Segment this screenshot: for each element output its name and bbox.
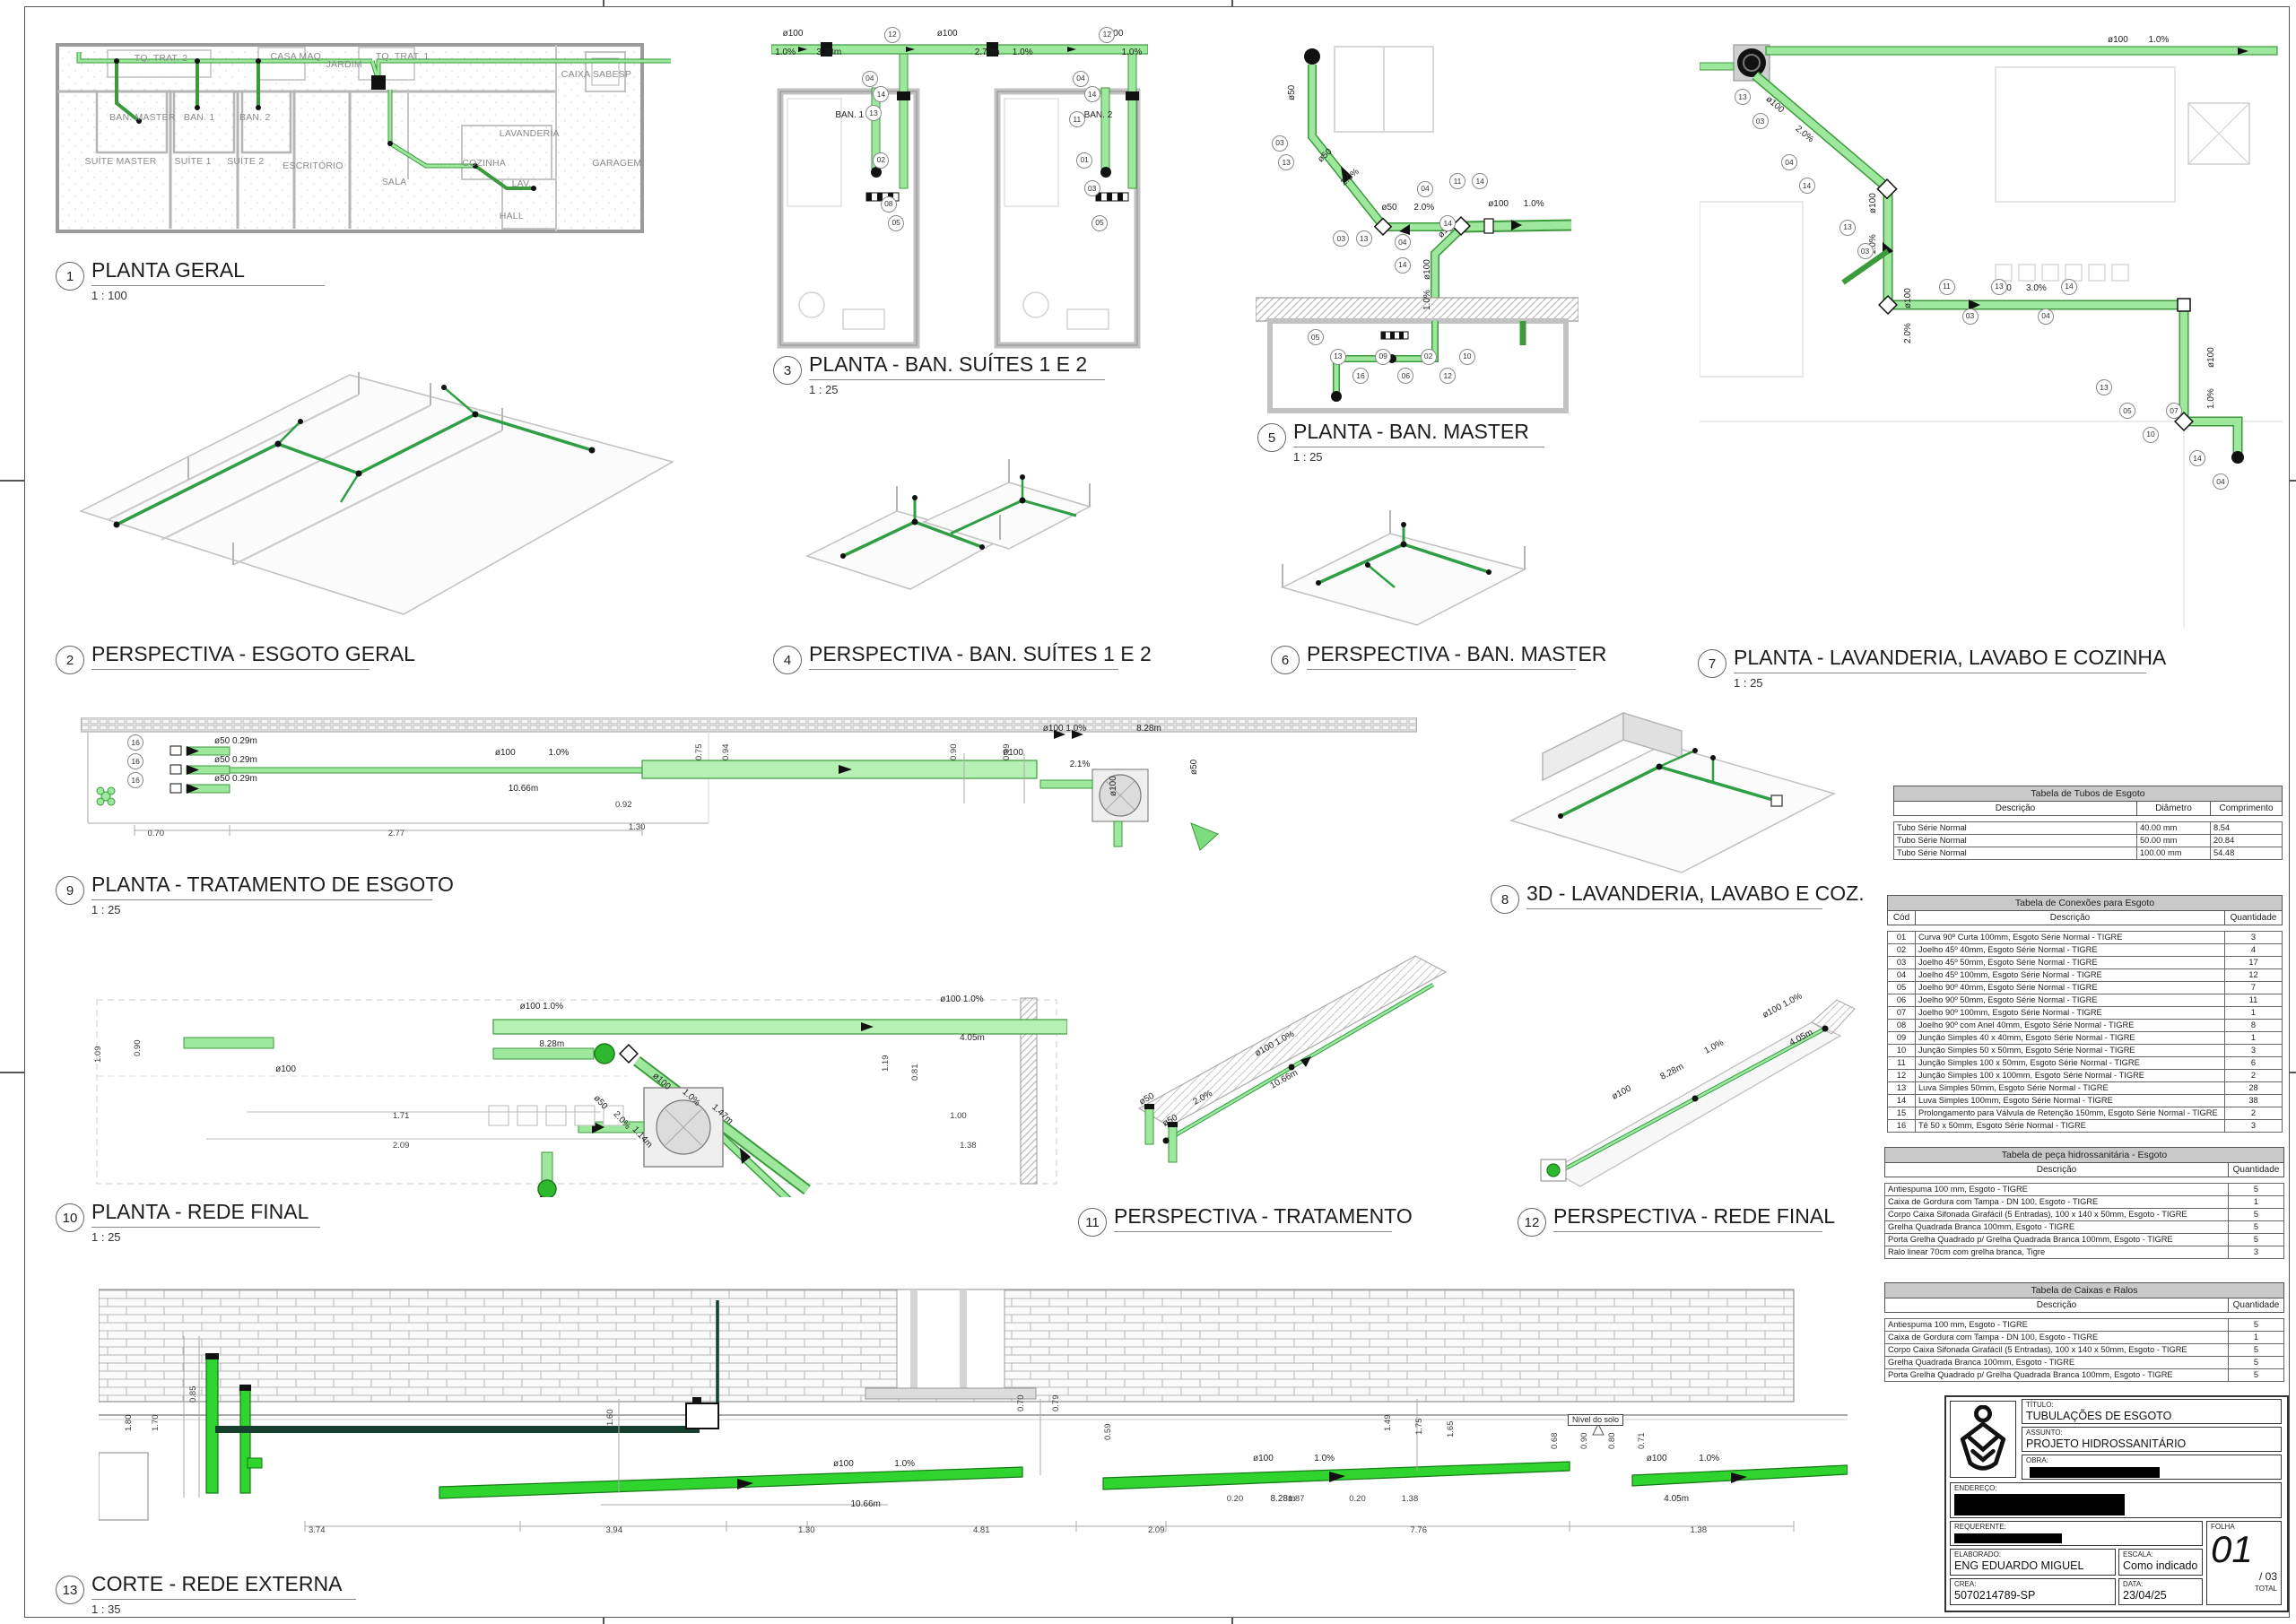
room-label: COZINHA [462,159,506,169]
perspectiva-geral-drawing [54,296,682,628]
pipe-label: ø100 [650,1072,672,1092]
col-diametro: Diâmetro [2136,802,2210,815]
total-label: TOTAL [2211,1585,2277,1593]
view-3d-lavanderia [1489,695,1848,879]
table-tubos: Tabela de Tubos de Esgoto Descrição Diâm… [1893,786,2283,860]
connection-tag: 03 [1962,308,1979,325]
pipe-label: 1.14m [631,1125,654,1150]
connection-tag: 04 [1417,181,1433,197]
pipe-label: ø50 [591,1094,608,1111]
room-label: BAN. 1 [184,113,214,123]
table-row: 06Joelho 90º 50mm, Esgoto Série Normal -… [1887,994,2283,1007]
connection-tag: 12 [1439,368,1456,384]
room-label: TQ. TRAT. 2 [135,54,188,64]
logo-box [1950,1401,2016,1478]
pipe-label: 1.38 [960,1142,977,1151]
pipe-label: 1.38 [1691,1526,1708,1535]
connection-tag: 13 [1330,349,1346,365]
pipe-label: Nível do solo [1568,1414,1623,1426]
col-comprimento: Comprimento [2210,802,2282,815]
field-value: ENG EDUARDO MIGUEL [1954,1559,2111,1572]
field-label: TÍTULO: [2026,1401,2277,1409]
room-label: LAVANDERIA [500,129,560,139]
view-corte-rede-externa: ø1001.0%10.66mø1001.0%8.28mø1001.0%4.05m… [99,1282,1848,1569]
view-planta-ban-suites: ø1001.0%3.38mø1002.78m1.0%ø1001.0%BAN. 1… [771,36,1148,350]
pipe-label: 4.05m [1664,1495,1689,1504]
table-row: Tubo Série Normal100.00 mm54.48 [1893,847,2283,860]
connection-tag: 04 [862,71,878,87]
pipe-label: 1.70 [152,1415,161,1432]
logo-icon [1954,1405,2012,1473]
pipe-label: 1.60 [606,1410,615,1427]
table-row: Porta Grelha Quadrado p/ Grelha Quadrada… [1884,1233,2284,1246]
field-label: ASSUNTO: [2026,1429,2277,1437]
view-scale: 1 : 25 [91,903,432,916]
pipe-label: ø100 1.0% [1254,1030,1296,1059]
pipe-label: 0.59 [1104,1424,1113,1441]
connection-tag: 03 [1752,113,1769,129]
table-row: Ralo linear 70cm com grelha branca, Tigr… [1884,1246,2284,1259]
edge-tick [603,1618,604,1624]
table-row: 03Joelho 45º 50mm, Esgoto Série Normal -… [1887,956,2283,969]
pipe-label: 1.49 [1384,1415,1393,1432]
view-title-6: 6 PERSPECTIVA - BAN. MASTER [1271,642,1576,674]
pipe-label: 0.79 [1052,1395,1061,1412]
table-row: Corpo Caixa Sifonada Girafácil (5 Entrad… [1884,1208,2284,1221]
edge-tick [0,1072,24,1073]
view-scale: 1 : 35 [91,1602,356,1616]
connection-tag: 16 [1352,368,1369,384]
field-value: PROJETO HIDROSSANITÁRIO [2026,1437,2277,1450]
connection-tag: 05 [888,215,904,231]
pipe-label: ø100 [1647,1455,1667,1463]
edge-tick [2290,1072,2296,1073]
pipe-label: 4.05m [960,1034,985,1043]
room-label: LAV. [512,179,532,189]
table-conexoes: Tabela de Conexões para Esgoto Cód Descr… [1887,895,2283,1133]
room-label: CASA MAQ. [271,52,325,62]
connection-tag: 06 [1397,368,1413,384]
view-title-text: PERSPECTIVA - TRATAMENTO [1114,1204,1392,1232]
view-number: 1 [56,262,84,291]
redacted-text [1954,1494,2125,1515]
connection-tag: 13 [865,105,882,121]
view-title-text: PERSPECTIVA - REDE FINAL [1553,1204,1822,1232]
table-row: Grelha Quadrada Branca 100mm, Esgoto - T… [1884,1356,2284,1369]
field-assunto: ASSUNTO: PROJETO HIDROSSANITÁRIO [2022,1427,2282,1452]
connection-tag: 11 [1939,279,1955,295]
view-number: 11 [1078,1208,1107,1237]
view-title-12: 12 PERSPECTIVA - REDE FINAL [1518,1204,1822,1237]
view-planta-geral: TQ. TRAT. 2CASA MAQ.JARDIMTQ. TRAT. 1CAI… [54,36,673,238]
view-perspectiva-esgoto-geral [54,296,682,628]
table-pecas: Tabela de peça hidrossanitária - Esgoto … [1884,1147,2284,1259]
connection-tag: 05 [1091,215,1108,231]
field-value: 5070214789-SP [1954,1589,2111,1602]
pipe-label: 1.0% [1699,1455,1719,1463]
connection-tag: 04 [1781,154,1797,170]
table-row: Caixa de Gordura com Tampa - DN 100, Esg… [1884,1331,2284,1344]
col-quantidade: Quantidade [2228,1298,2283,1312]
col-descricao: Descrição [1915,911,2224,925]
view-title-text: CORTE - REDE EXTERNA [91,1572,356,1600]
pipe-label: 4.81 [973,1526,990,1535]
table-title: Tabela de peça hidrossanitária - Esgoto [1884,1147,2284,1163]
view-scale: 1 : 25 [91,1230,320,1244]
table-row: 15Prolongamento para Válvula de Retenção… [1887,1107,2283,1120]
pipe-label: 1.30 [798,1526,815,1535]
view-number: 2 [56,646,84,674]
view-title-5: 5 PLANTA - BAN. MASTER 1 : 25 [1257,420,1544,464]
table-title: Tabela de Caixas e Ralos [1884,1282,2284,1298]
field-value: TUBULAÇÕES DE ESGOTO [2026,1410,2277,1422]
view-number: 13 [56,1576,84,1604]
perspectiva-suites-drawing [789,421,1094,637]
field-requerente: REQUERENTE: [1950,1521,2203,1546]
pipe-label: 1.0% [1703,1038,1726,1056]
room-label: ESCRITÓRIO [283,161,343,171]
field-label: ELABORADO: [1954,1550,2111,1559]
connection-tag: 11 [1449,173,1465,189]
view-title-text: PERSPECTIVA - ESGOTO GERAL [91,642,370,670]
pipe-label: 2.0% [1192,1090,1214,1107]
table-row: 13Luva Simples 50mm, Esgoto Série Normal… [1887,1081,2283,1095]
view-number: 10 [56,1203,84,1232]
connection-tag: 04 [2213,473,2229,490]
pipe-label: 0.90 [134,1039,143,1056]
connection-tag: 13 [1735,89,1751,105]
pipe-label: ø50 [1138,1092,1156,1107]
pipe-label: 2.09 [1148,1526,1165,1535]
edge-tick [1231,1618,1233,1624]
pipe-label: 0.90 [1580,1432,1589,1449]
connection-tag: 04 [2038,308,2054,325]
table-row: 07Joelho 90º 100mm, Esgoto Série Normal … [1887,1006,2283,1020]
field-titulo: TÍTULO: TUBULAÇÕES DE ESGOTO [2022,1399,2282,1424]
view-scale: 1 : 25 [1293,450,1544,464]
room-label: JARDIM [326,60,362,70]
pipe-label: 1.0% [894,1460,915,1469]
table-row: Caixa de Gordura com Tampa - DN 100, Esg… [1884,1195,2284,1209]
view-title-text: PLANTA - BAN. SUÍTES 1 E 2 [809,352,1105,380]
view-perspectiva-tratamento: ø50ø502.0%ø100 1.0%10.66m [1076,933,1462,1202]
table-row: Grelha Quadrada Branca 100mm, Esgoto - T… [1884,1220,2284,1234]
table-row: 11Junção Simples 100 x 50mm, Esgoto Séri… [1887,1056,2283,1070]
pipe-label: 8.28m [1659,1062,1685,1081]
pipe-label: 1.19 [882,1055,891,1073]
table-title: Tabela de Conexões para Esgoto [1887,895,2283,911]
connection-tag: 12 [1099,27,1115,43]
redacted-text [2030,1467,2160,1478]
pipe-label: 1.0% [680,1088,701,1108]
connection-tag: 13 [1356,230,1372,247]
col-quantidade: Quantidade [2224,911,2282,925]
view-title-text: PLANTA GERAL [91,258,325,286]
view-title-text: PERSPECTIVA - BAN. MASTER [1307,642,1576,670]
pipe-label: 4.05m [1788,1029,1814,1048]
pipe-label: 10.66m [851,1500,881,1509]
view-title-text: PLANTA - LAVANDERIA, LAVABO E COZINHA [1734,646,2146,673]
connection-tag: 16 [127,734,143,751]
connection-tag: 14 [1084,86,1100,102]
view-planta-rede-final: ø100 1.0%8.28mø100 1.0%4.05mø100ø1001.0%… [90,973,1067,1197]
table-header: Descrição Diâmetro Comprimento [1893,802,2283,816]
connection-tag: 03 [1857,243,1874,259]
view-title-4: 4 PERSPECTIVA - BAN. SUÍTES 1 E 2 [773,642,1118,674]
view-title-text: PLANTA - TRATAMENTO DE ESGOTO [91,873,432,900]
view-title-2: 2 PERSPECTIVA - ESGOTO GERAL [56,642,370,674]
pipe-label: 1.47m [709,1103,734,1126]
room-label: BAN. MASTER [109,113,175,123]
table-title: Tabela de Tubos de Esgoto [1893,786,2283,802]
view-title-text: PERSPECTIVA - BAN. SUÍTES 1 E 2 [809,642,1118,670]
connection-tag: 11 [1069,111,1085,127]
room-label: BAN. 2 [239,113,270,123]
edge-tick [603,0,604,6]
table-header: Cód Descrição Quantidade [1887,911,2283,925]
col-descricao: Descrição [1885,1163,2228,1177]
connection-tag: 04 [1073,71,1089,87]
connection-tag: 13 [1278,154,1294,170]
col-quantidade: Quantidade [2228,1163,2283,1177]
pipe-label: 2.0% [611,1110,631,1132]
pipe-label: ø100 1.0% [1761,992,1804,1020]
room-label: SUÍTE MASTER [85,157,157,167]
field-label: ESCALA: [2123,1550,2198,1559]
pipe-label: ø100 [833,1460,854,1469]
table-row: 04Joelho 45º 100mm, Esgoto Série Normal … [1887,968,2283,982]
edge-tick [1231,0,1233,6]
pipe-label: 10.66m [1269,1069,1300,1091]
pipe-label: 1.75 [1415,1418,1424,1435]
room-label: CAIXA SABESP [561,70,631,80]
pipe-label: 1.71 [393,1112,410,1121]
drawing-sheet: TQ. TRAT. 2CASA MAQ.JARDIMTQ. TRAT. 1CAI… [0,0,2296,1624]
connection-tag: 14 [1395,257,1411,274]
pipe-label: 1.65 [1447,1420,1456,1437]
field-value: Como indicado [2123,1559,2198,1572]
field-escala: ESCALA: Como indicado [2118,1549,2203,1576]
view-title-text: PLANTA - REDE FINAL [91,1200,320,1228]
table-row: 10Junção Simples 50 x 50mm, Esgoto Série… [1887,1044,2283,1057]
pipe-label: 8.28m [539,1040,564,1049]
pipe-label: 1.0% [1314,1455,1335,1463]
room-label: GARAGEM [592,159,641,169]
table-row: 08Joelho 90º com Anel 40mm, Esgoto Série… [1887,1019,2283,1032]
col-descricao: Descrição [1894,802,2136,815]
col-cod: Cód [1888,911,1915,925]
room-label: SALA [382,178,407,187]
connection-tag: 05 [1308,329,1324,345]
field-obra: OBRA: [2022,1455,2282,1480]
view-title-text: PLANTA - BAN. MASTER [1293,420,1544,447]
pipe-label: 0.20 [1349,1495,1366,1504]
sheet-number: 01 [2211,1528,2253,1570]
table-row: Antiespuma 100 mm, Esgoto - TIGRE5 [1884,1183,2284,1196]
field-data: DATA: 23/04/25 [2118,1578,2203,1605]
pipe-label: ø100 [1253,1455,1274,1463]
connection-tag: 14 [1439,215,1456,231]
table-row: 05Joelho 90º 40mm, Esgoto Série Normal -… [1887,981,2283,994]
view-number: 12 [1518,1208,1546,1237]
table-row: 01Curva 90º Curta 100mm, Esgoto Série No… [1887,931,2283,944]
field-label: DATA: [2123,1580,2198,1588]
room-label: SUÍTE 1 [175,157,212,167]
room-label: SUÍTE 2 [227,157,264,167]
view-number: 6 [1271,646,1300,674]
table-row: 09Junção Simples 40 x 40mm, Esgoto Série… [1887,1031,2283,1045]
view-planta-tratamento: ø50 0.29mø50 0.29mø50 0.29mø1001.0%10.66… [81,717,1417,861]
pipe-label: ø50 [1161,1114,1179,1129]
connection-tag: 13 [1991,279,2007,295]
field-label: REQUERENTE: [1954,1523,2198,1531]
pipe-label: ø100 [275,1065,296,1074]
pipe-label: 7.76 [1411,1526,1428,1535]
pipe-label: 1.80 [125,1415,134,1432]
pipe-label: 2.09 [393,1142,410,1151]
table-header: Descrição Quantidade [1884,1163,2284,1177]
connection-tag: 14 [2061,279,2077,295]
pipe-label: 0.71 [1638,1432,1647,1449]
connection-tag: 10 [2143,427,2159,443]
connection-tag: 13 [2096,379,2112,395]
field-label: OBRA: [2026,1456,2277,1464]
connection-tag: 02 [1421,349,1437,365]
field-crea: CREA: 5070214789-SP [1950,1578,2116,1605]
title-block: TÍTULO: TUBULAÇÕES DE ESGOTO ASSUNTO: PR… [1944,1395,2289,1612]
field-label: CREA: [1954,1580,2111,1588]
field-elaborado: ELABORADO: ENG EDUARDO MIGUEL [1950,1549,2116,1576]
connection-tag: 03 [1272,135,1288,152]
field-folha: FOLHA 01 / 03 TOTAL [2206,1521,2282,1605]
connection-tag: 10 [1459,349,1475,365]
pipe-label: 0.80 [1608,1432,1617,1449]
field-endereco: ENDEREÇO: [1950,1482,2282,1518]
pipe-label: 3.94 [606,1526,623,1535]
view-number: 7 [1698,649,1726,678]
field-label: ENDEREÇO: [1954,1484,2277,1492]
perspectiva-master-drawing [1269,480,1538,632]
connection-tag: 16 [127,772,143,788]
connection-tag: 14 [873,86,889,102]
connection-tag: 16 [127,753,143,769]
pipe-label: ø100 [1611,1085,1633,1103]
view-title-10: 10 PLANTA - REDE FINAL 1 : 25 [56,1200,320,1244]
pipe-label: ø100 1.0% [940,995,983,1004]
3d-lavanderia-drawing [1489,695,1848,879]
room-label: HALL [500,212,524,221]
view-planta-ban-master: ø50ø502.0%ø502.0%ø100ø1001.0%ø1001.0% 03… [1256,36,1578,417]
table-row: Corpo Caixa Sifonada Girafácil (5 Entrad… [1884,1343,2284,1357]
edge-tick [2290,480,2296,482]
connection-tag: 09 [1375,349,1391,365]
redacted-text [1954,1533,2062,1543]
col-descricao: Descrição [1885,1298,2228,1312]
connection-tag: 01 [1076,152,1092,169]
pipe-label: 0.85 [189,1386,198,1403]
connection-tag: 14 [2189,450,2205,466]
table-row: Antiespuma 100 mm, Esgoto - TIGRE5 [1884,1318,2284,1332]
pipe-label: 1.38 [1402,1495,1419,1504]
pipe-label: 1.87 [1288,1495,1305,1504]
connection-tag: 07 [2166,403,2182,419]
table-header: Descrição Quantidade [1884,1298,2284,1313]
view-title-text: 3D - LAVANDERIA, LAVABO E COZ. [1526,881,1822,909]
view-title-3: 3 PLANTA - BAN. SUÍTES 1 E 2 1 : 25 [773,352,1105,396]
table-caixas: Tabela de Caixas e Ralos Descrição Quant… [1884,1282,2284,1382]
connection-tag: 08 [881,196,897,213]
view-title-9: 9 PLANTA - TRATAMENTO DE ESGOTO 1 : 25 [56,873,432,916]
connection-tag: 14 [1472,173,1488,189]
view-title-8: 8 3D - LAVANDERIA, LAVABO E COZ. [1491,881,1822,914]
view-number: 3 [773,356,802,385]
room-label: TQ. TRAT. 1 [376,52,430,62]
pipe-label: 0.81 [911,1064,920,1081]
view-number: 9 [56,876,84,905]
connection-tag: 03 [1333,230,1349,247]
table-row: Porta Grelha Quadrado p/ Grelha Quadrada… [1884,1368,2284,1382]
view-title-11: 11 PERSPECTIVA - TRATAMENTO [1078,1204,1392,1237]
view-scale: 1 : 25 [809,383,1105,396]
pipe-label: 0.70 [1017,1395,1026,1412]
pipe-label: 0.20 [1227,1495,1244,1504]
view-title-13: 13 CORTE - REDE EXTERNA 1 : 35 [56,1572,356,1616]
sheet-total: / 03 [2211,1570,2277,1583]
view-perspectiva-ban-master [1269,480,1538,632]
table-row: 12Junção Simples 100 x 100mm, Esgoto Sér… [1887,1069,2283,1082]
pipe-label: 0.68 [1551,1432,1560,1449]
pipe-label: ø100 1.0% [520,1003,563,1012]
table-row: 14Luva Simples 100mm, Esgoto Série Norma… [1887,1094,2283,1107]
view-number: 8 [1491,885,1519,914]
connection-tag: 13 [1839,220,1856,236]
edge-tick [0,480,24,482]
connection-tag: 04 [1395,234,1411,250]
table-row: 16Tê 50 x 50mm, Esgoto Série Normal - TI… [1887,1119,2283,1133]
connection-tag: 03 [1084,180,1100,196]
pipe-label: 1.00 [950,1112,967,1121]
table-row: Tubo Série Normal40.00 mm8.54 [1893,821,2283,835]
view-perspectiva-ban-suites [789,421,1094,637]
field-value: 23/04/25 [2123,1589,2198,1602]
connection-tag: 02 [873,152,889,169]
view-number: 4 [773,646,802,674]
connection-tag: 12 [884,27,900,43]
pipe-label: 3.74 [309,1526,326,1535]
connection-tag: 14 [1799,178,1815,194]
table-row: 02Joelho 45º 40mm, Esgoto Série Normal -… [1887,943,2283,957]
pipe-label: 1.09 [94,1046,103,1064]
table-row: Tubo Série Normal50.00 mm20.84 [1893,834,2283,847]
connection-tag: 05 [2119,403,2135,419]
view-planta-lavanderia: ø1001.0%ø1002.0%ø1001.0%ø1002.0%ø1003.0%… [1700,36,2283,628]
view-title-7: 7 PLANTA - LAVANDERIA, LAVABO E COZINHA … [1698,646,2146,690]
view-scale: 1 : 25 [1734,676,2146,690]
view-perspectiva-rede-final: ø1008.28m1.0%ø100 1.0%4.05m [1516,946,1857,1202]
view-number: 5 [1257,423,1286,452]
